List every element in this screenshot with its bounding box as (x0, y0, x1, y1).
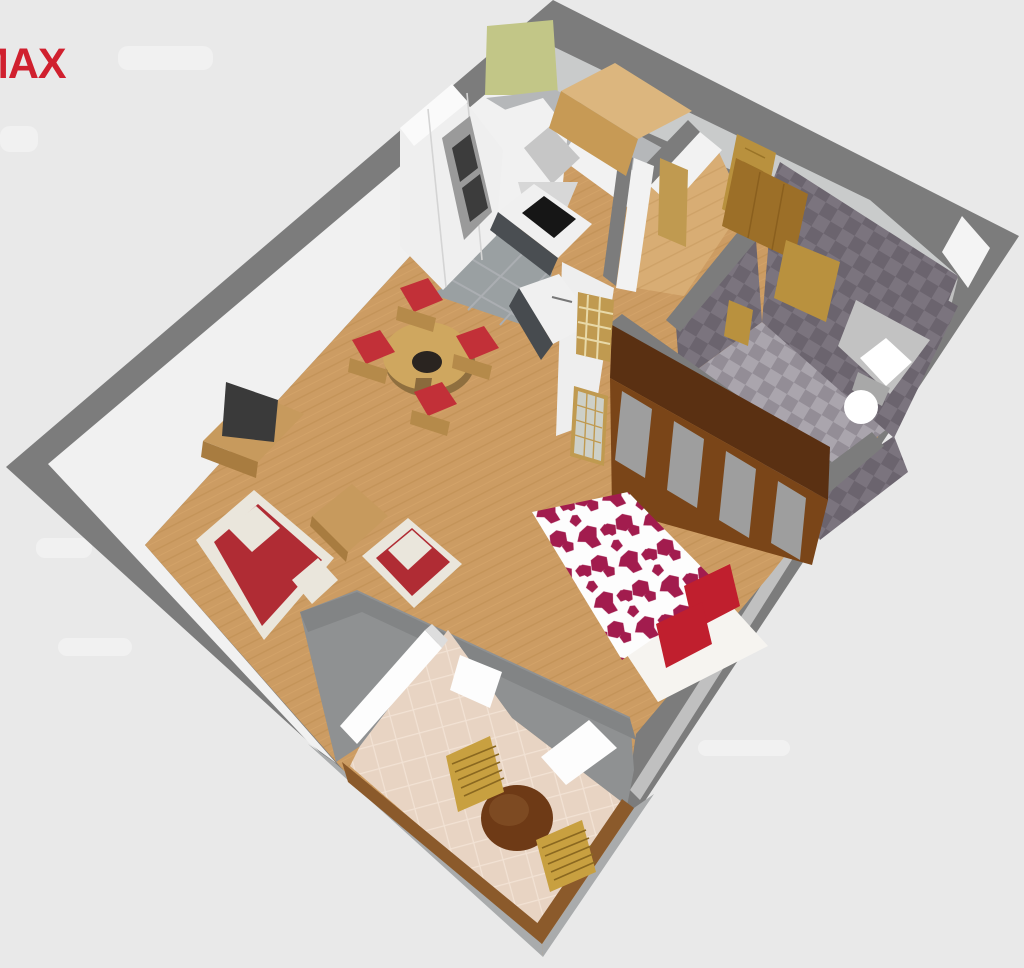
svg-text:MAX: MAX (0, 40, 67, 88)
